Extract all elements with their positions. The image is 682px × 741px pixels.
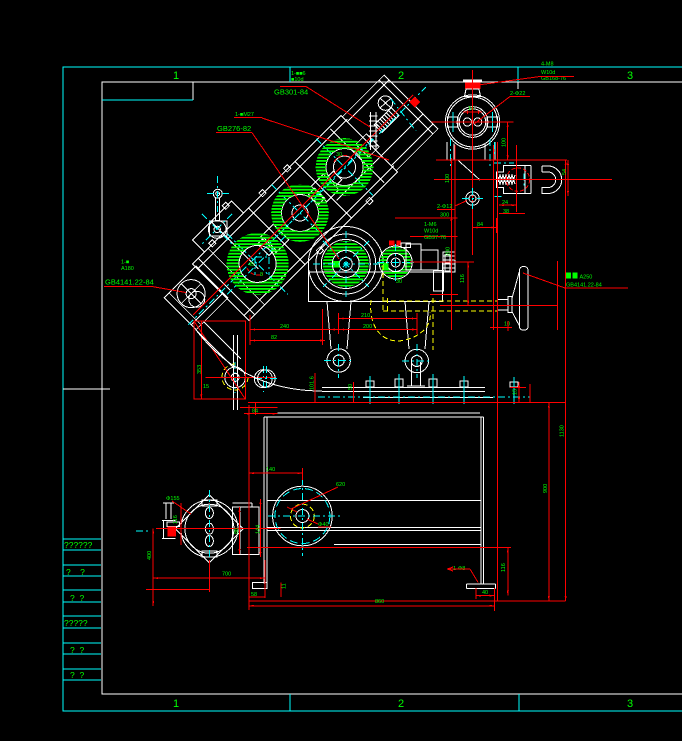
svg-text:GB276-82: GB276-82 bbox=[217, 124, 251, 133]
svg-text:1: 1 bbox=[173, 698, 179, 710]
svg-text:1-■: 1-■ bbox=[121, 260, 129, 266]
svg-text:860: 860 bbox=[375, 599, 384, 605]
svg-text:84: 84 bbox=[477, 222, 483, 228]
svg-text:900: 900 bbox=[543, 484, 549, 493]
svg-text:? ?: ? ? bbox=[70, 645, 84, 655]
svg-text:15: 15 bbox=[513, 389, 519, 395]
svg-text:? ?: ? ? bbox=[70, 593, 84, 603]
svg-text:A180: A180 bbox=[121, 266, 134, 272]
svg-text:10: 10 bbox=[504, 322, 510, 328]
svg-text:100: 100 bbox=[502, 138, 508, 147]
svg-text:3: 3 bbox=[627, 70, 633, 82]
svg-text:GB4141.22-84: GB4141.22-84 bbox=[105, 278, 154, 287]
svg-text:86: 86 bbox=[234, 528, 240, 534]
svg-text:54: 54 bbox=[562, 169, 568, 175]
svg-text:100: 100 bbox=[445, 174, 451, 183]
svg-text:3: 3 bbox=[627, 698, 633, 710]
svg-text:1130: 1130 bbox=[560, 425, 566, 437]
svg-text:116: 116 bbox=[173, 515, 179, 524]
svg-text:40: 40 bbox=[482, 590, 488, 596]
svg-text:210: 210 bbox=[361, 313, 370, 319]
svg-text:116: 116 bbox=[501, 563, 507, 572]
svg-text:58: 58 bbox=[251, 592, 257, 598]
svg-text:8: 8 bbox=[260, 272, 263, 278]
svg-text:144: 144 bbox=[256, 525, 262, 534]
svg-text:45: 45 bbox=[248, 262, 254, 268]
svg-text:16: 16 bbox=[468, 106, 474, 112]
svg-text:GB97-76: GB97-76 bbox=[424, 235, 446, 241]
svg-text:??????: ?????? bbox=[64, 540, 93, 550]
svg-text:116: 116 bbox=[460, 274, 466, 283]
svg-text:1-M6: 1-M6 bbox=[424, 222, 437, 228]
svg-text:84: 84 bbox=[252, 409, 258, 415]
svg-text:2: 2 bbox=[398, 698, 404, 710]
svg-text:? ?: ? ? bbox=[66, 567, 85, 577]
svg-text:1: 1 bbox=[173, 70, 179, 82]
svg-text:200: 200 bbox=[446, 247, 452, 256]
svg-text:11: 11 bbox=[282, 583, 288, 589]
svg-text:4-M8: 4-M8 bbox=[541, 62, 554, 68]
svg-text:■10d: ■10d bbox=[291, 77, 304, 83]
svg-text:200: 200 bbox=[363, 324, 372, 330]
svg-text:82: 82 bbox=[271, 335, 277, 341]
svg-text:15: 15 bbox=[203, 384, 209, 390]
svg-text:101.6: 101.6 bbox=[310, 376, 316, 390]
svg-text:300: 300 bbox=[440, 213, 449, 219]
svg-text:30: 30 bbox=[396, 279, 402, 285]
svg-text:50: 50 bbox=[348, 384, 354, 390]
svg-text:GB301-84: GB301-84 bbox=[274, 88, 308, 97]
svg-text:?????: ????? bbox=[64, 618, 88, 628]
svg-text:353: 353 bbox=[197, 365, 203, 374]
svg-text:30: 30 bbox=[336, 152, 342, 158]
svg-text:2: 2 bbox=[398, 70, 404, 82]
svg-text:240: 240 bbox=[280, 324, 289, 330]
svg-text:400: 400 bbox=[147, 551, 153, 560]
svg-text:A250: A250 bbox=[580, 275, 593, 281]
svg-text:38: 38 bbox=[503, 209, 509, 215]
svg-text:700: 700 bbox=[222, 572, 231, 578]
svg-text:W10d: W10d bbox=[424, 229, 438, 235]
svg-text:? ?: ? ? bbox=[70, 670, 84, 680]
svg-text:140: 140 bbox=[266, 467, 275, 473]
